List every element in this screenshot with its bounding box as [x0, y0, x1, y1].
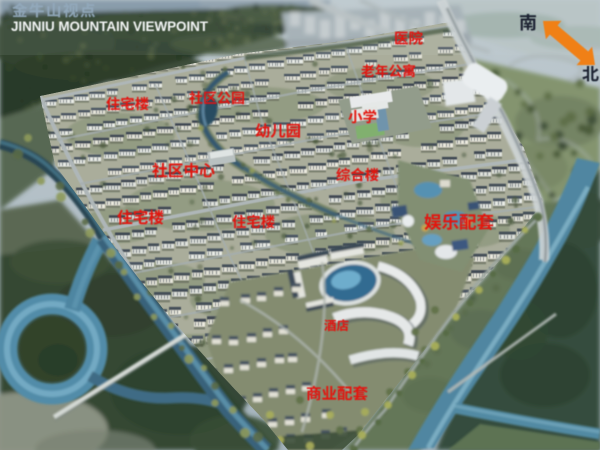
svg-text:JINNIU MOUNTAIN VIEWPOINT: JINNIU MOUNTAIN VIEWPOINT: [11, 19, 209, 34]
